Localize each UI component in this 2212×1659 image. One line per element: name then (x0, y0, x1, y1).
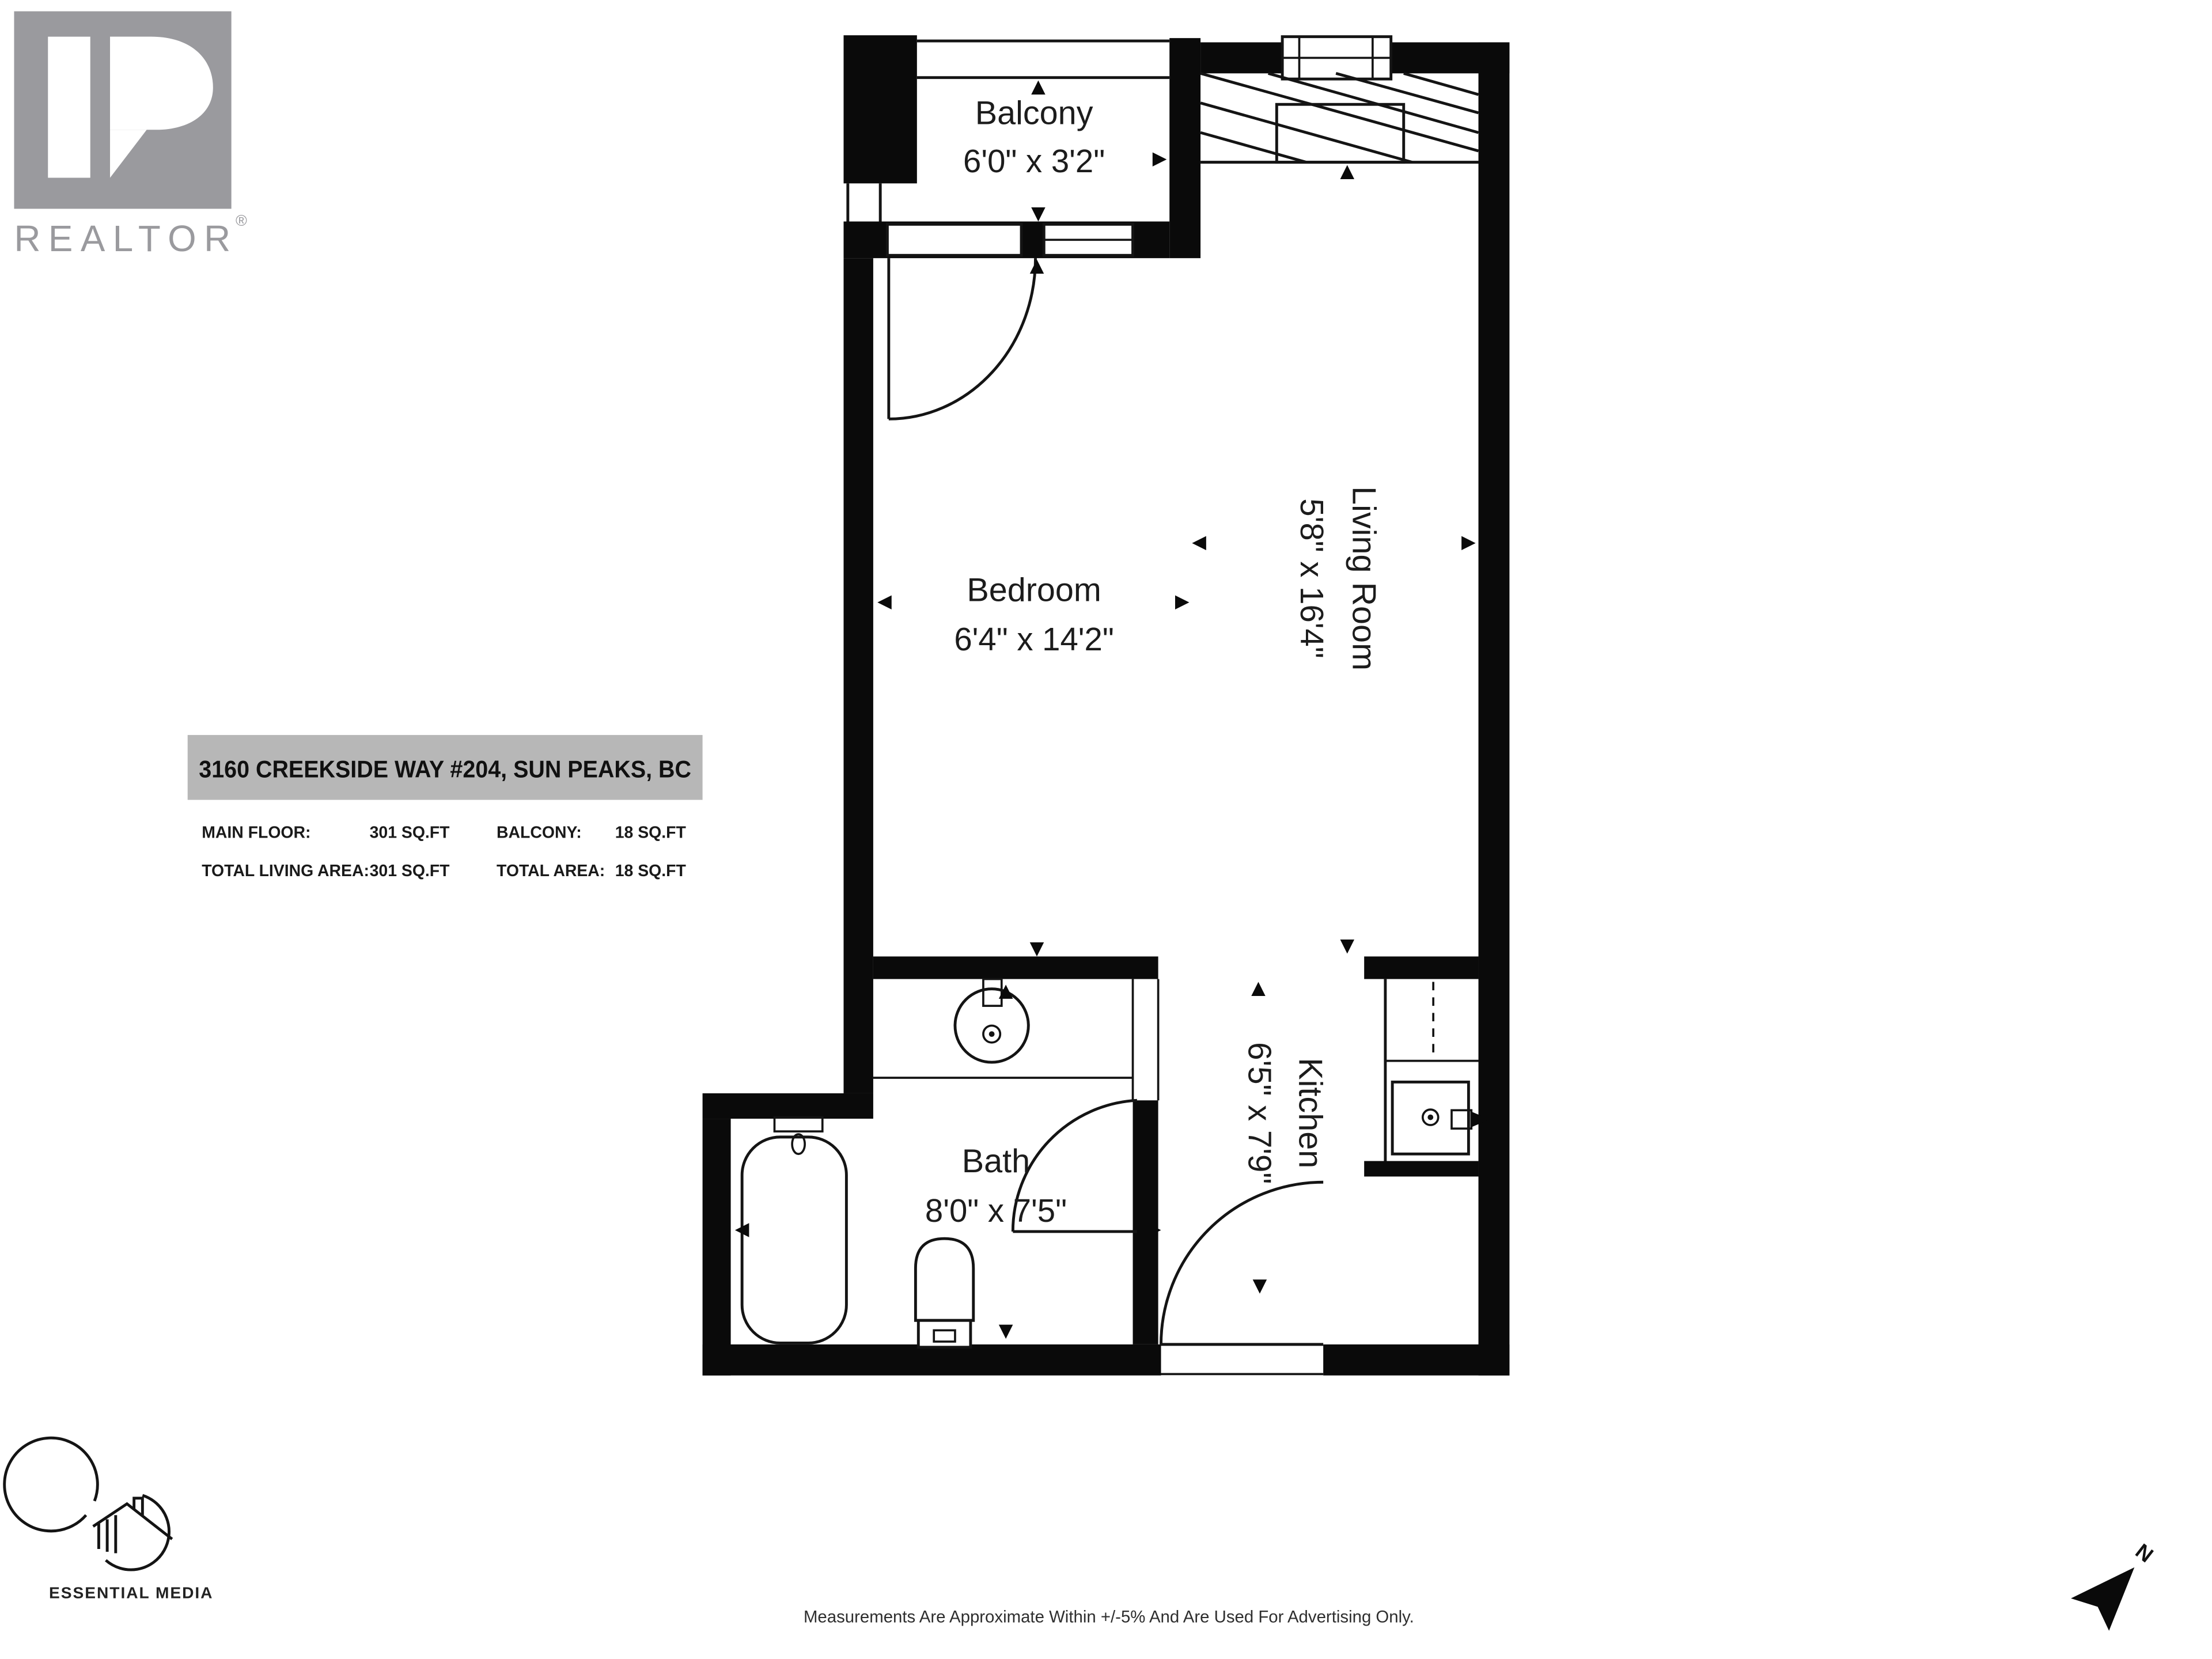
svg-text:5'8" x 16'4": 5'8" x 16'4" (1294, 498, 1330, 658)
balcony-door (889, 258, 1036, 419)
stat-value: 18 SQ.FT (615, 862, 687, 880)
balcony-door-panels (887, 224, 1132, 255)
room-label-balcony: Balcony 6'0" x 3'2" (963, 95, 1105, 179)
media-credit: ESSENTIAL MEDIA (49, 1584, 213, 1602)
svg-text:8'0" x 7'5": 8'0" x 7'5" (925, 1192, 1067, 1229)
svg-text:Living Room: Living Room (1346, 486, 1382, 671)
svg-text:Kitchen: Kitchen (1292, 1058, 1329, 1168)
stat-value: 301 SQ.FT (370, 862, 450, 880)
floor-plan: Balcony 6'0" x 3'2" Bedroom 6'4" x 14'2"… (703, 35, 1510, 1376)
floorplan-sheet: REALTOR ® (0, 0, 2212, 1659)
north-arrow: N (2071, 1539, 2158, 1631)
hatched-area (1200, 73, 1478, 162)
kitchen-fixtures (1385, 979, 1490, 1161)
room-label-bedroom: Bedroom 6'4" x 14'2" (954, 571, 1114, 657)
address-card: 3160 CREEKSIDE WAY #204, SUN PEAKS, BC M… (188, 735, 703, 880)
registered-mark: ® (236, 212, 247, 229)
svg-text:Bath: Bath (962, 1143, 1030, 1180)
north-label: N (2131, 1539, 2158, 1567)
svg-text:6'4" x 14'2": 6'4" x 14'2" (954, 621, 1114, 657)
stat-label: TOTAL AREA: (497, 862, 605, 880)
stat-value: 301 SQ.FT (370, 824, 450, 842)
north-arrow-icon (2071, 1567, 2134, 1631)
bathtub (742, 1137, 846, 1343)
stat-label: TOTAL LIVING AREA: (202, 862, 369, 880)
stat-label: BALCONY: (497, 824, 582, 842)
svg-text:6'5" x 7'9": 6'5" x 7'9" (1241, 1042, 1278, 1184)
realtor-wordmark: REALTOR (14, 218, 238, 259)
disclaimer: Measurements Are Approximate Within +/-5… (804, 1607, 1414, 1626)
svg-text:6'0" x 3'2": 6'0" x 3'2" (963, 143, 1105, 179)
area-stats: MAIN FLOOR: 301 SQ.FT BALCONY: 18 SQ.FT … (202, 824, 686, 880)
essential-media-logo: ESSENTIAL MEDIA (5, 1438, 214, 1601)
tub-faucet (774, 1118, 822, 1131)
realtor-logo: REALTOR ® (14, 12, 247, 259)
toilet (915, 1238, 973, 1347)
svg-text:Bedroom: Bedroom (967, 571, 1101, 608)
stat-value: 18 SQ.FT (615, 824, 687, 842)
room-label-bath: Bath 8'0" x 7'5" (925, 1143, 1067, 1229)
entry-door (1161, 1182, 1324, 1376)
room-label-kitchen: Kitchen 6'5" x 7'9" (1241, 1042, 1328, 1184)
stat-label: MAIN FLOOR: (202, 824, 310, 842)
room-label-living-room: Living Room 5'8" x 16'4" (1294, 486, 1382, 671)
address-text: 3160 CREEKSIDE WAY #204, SUN PEAKS, BC (199, 755, 691, 782)
svg-text:Balcony: Balcony (975, 95, 1093, 132)
bath-fixtures (742, 979, 1132, 1347)
